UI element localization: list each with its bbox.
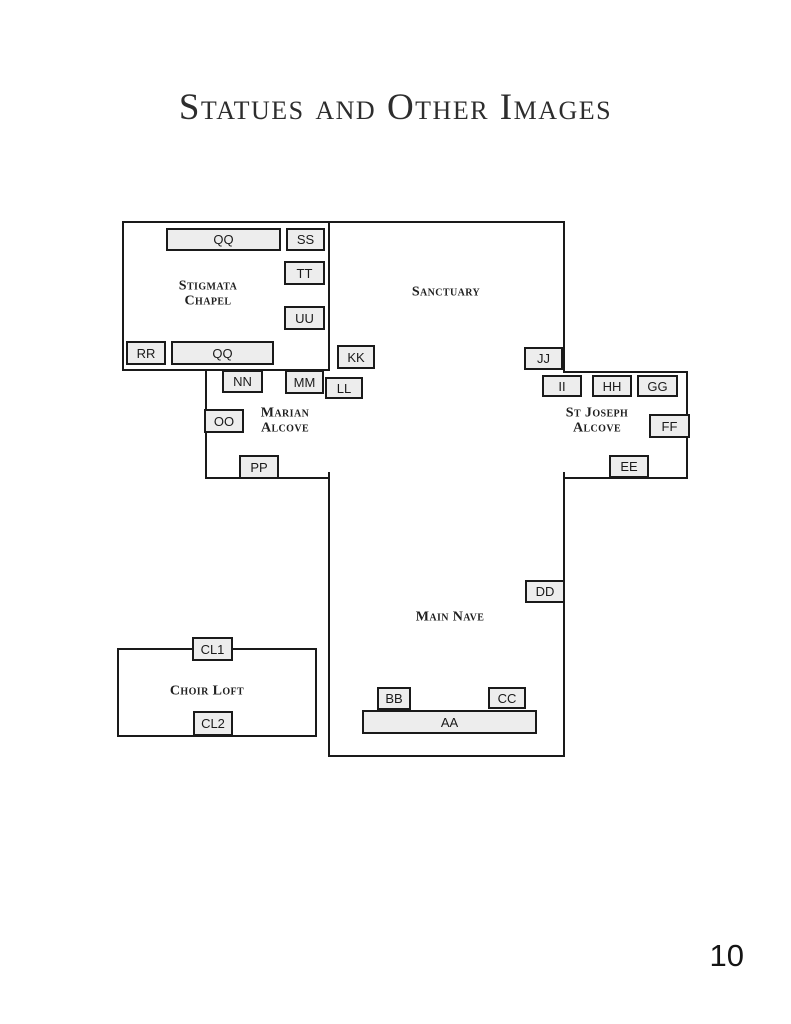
area-label-choir-loft: Choir Loft [170, 683, 244, 698]
statue-marker-AA: AA [362, 710, 537, 734]
area-label-marian-alcove: MarianAlcove [261, 406, 309, 437]
statue-marker-DD: DD [525, 580, 565, 603]
statue-marker-GG: GG [637, 375, 678, 397]
statue-marker-SS: SS [286, 228, 325, 251]
statue-marker-FF: FF [649, 414, 690, 438]
statue-marker-RR: RR [126, 341, 166, 365]
statue-marker-II: II [542, 375, 582, 397]
statue-marker-TT: TT [284, 261, 325, 285]
statue-marker-OO: OO [204, 409, 244, 433]
statue-marker-HH: HH [592, 375, 632, 397]
wall-nave-right [563, 472, 565, 757]
statue-marker-PP: PP [239, 455, 279, 479]
wall-nave-left [328, 472, 330, 757]
statue-marker-CL1: CL1 [192, 637, 233, 661]
statue-marker-KK: KK [337, 345, 375, 369]
wall-nave-bottom [328, 755, 565, 757]
area-label-st-joseph-alcove: St JosephAlcove [566, 406, 628, 437]
statue-marker-BB: BB [377, 687, 411, 710]
church-floorplan-diagram: QQSSTTUURRQQKKNNMMLLOOPPJJIIHHGGFFEEDDBB… [0, 0, 791, 1024]
page-number: 10 [710, 938, 744, 974]
statue-marker-UU: UU [284, 306, 325, 330]
document-page: Statues and Other Images QQSSTTUURRQQKKN… [0, 0, 791, 1024]
statue-marker-CC: CC [488, 687, 526, 709]
wall-sanctuary-right [563, 221, 565, 373]
wall-sanctuary-top [328, 221, 565, 223]
statue-marker-EE: EE [609, 455, 649, 478]
area-label-stigmata-chapel: StigmataChapel [179, 279, 237, 310]
statue-marker-LL: LL [325, 377, 363, 399]
statue-marker-QQ-bottom: QQ [171, 341, 274, 365]
area-label-sanctuary: Sanctuary [412, 284, 480, 299]
statue-marker-CL2: CL2 [193, 711, 233, 736]
statue-marker-MM: MM [285, 370, 324, 394]
area-label-main-nave: Main Nave [416, 609, 485, 624]
statue-marker-JJ: JJ [524, 347, 563, 370]
wall-stjoseph-top [563, 371, 688, 373]
statue-marker-QQ-top: QQ [166, 228, 281, 251]
statue-marker-NN: NN [222, 370, 263, 393]
